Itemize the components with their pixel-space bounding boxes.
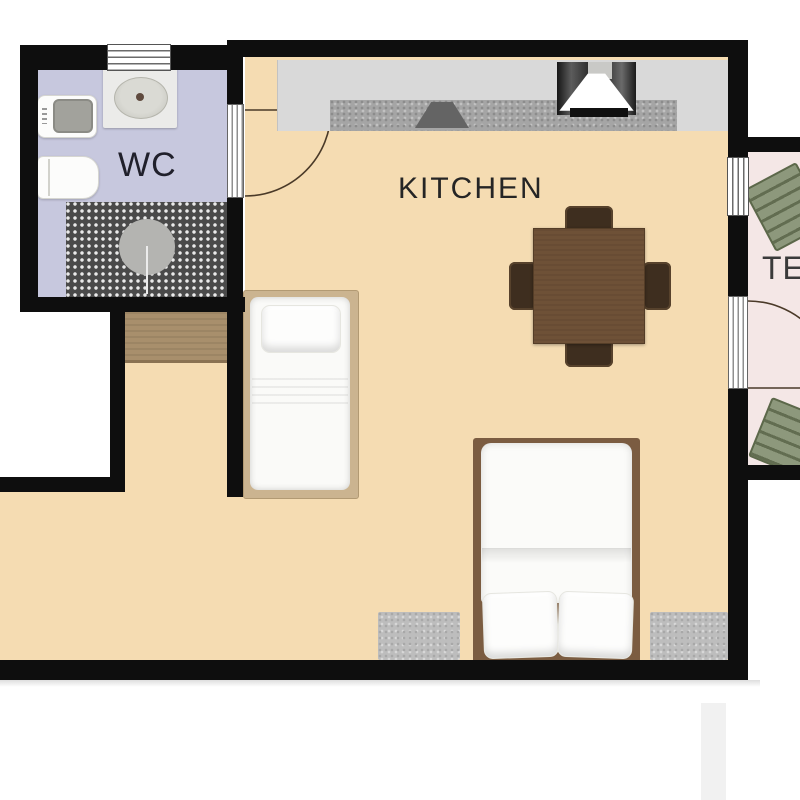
dining-chair-right bbox=[643, 262, 671, 310]
wall-top-kitchen bbox=[227, 40, 748, 57]
wall-right-lower bbox=[728, 388, 748, 680]
wall-terrace-top bbox=[748, 137, 800, 152]
wooden-cabinet bbox=[125, 312, 227, 363]
wc-window-icon bbox=[108, 45, 170, 70]
floor-plan: WC KITCHEN TE bbox=[0, 0, 800, 800]
wall-terrace-bottom bbox=[748, 465, 800, 480]
toilet-tank-line bbox=[48, 159, 50, 196]
wall-wc-bottom bbox=[20, 297, 245, 312]
shower-tiled-area bbox=[66, 202, 227, 297]
wall-right-upper bbox=[728, 40, 748, 158]
stove-strip-icon bbox=[570, 108, 628, 117]
shower-stem-line bbox=[146, 246, 148, 294]
wall-bottom bbox=[0, 660, 748, 680]
double-bed-pillow-left bbox=[482, 591, 559, 660]
wc-room-label: WC bbox=[118, 146, 177, 185]
wall-notch-bottom bbox=[0, 477, 125, 492]
bedside-rug-right bbox=[650, 612, 728, 660]
wall-bed-partition bbox=[227, 312, 243, 497]
washer-knobs-icon bbox=[42, 108, 47, 124]
double-bed-fold-line bbox=[482, 548, 631, 563]
double-bed-pillow-right bbox=[557, 591, 634, 660]
wall-wc-right-lower bbox=[227, 195, 243, 297]
wc-sink-vanity bbox=[103, 67, 177, 128]
washer-door-icon bbox=[53, 99, 93, 133]
double-bed-duvet bbox=[481, 443, 632, 603]
terrace-room-label: TE bbox=[762, 250, 800, 287]
terrace-window-icon bbox=[728, 158, 748, 215]
wall-wc-right-upper bbox=[227, 57, 243, 107]
wall-left bbox=[20, 45, 38, 312]
bottom-wall-shadow bbox=[0, 680, 760, 687]
wc-sink-drain-icon bbox=[136, 93, 144, 101]
terrace-door-icon bbox=[729, 297, 747, 388]
wall-notch-right bbox=[110, 312, 125, 492]
washing-machine-icon bbox=[37, 95, 97, 138]
single-bed-pillow bbox=[261, 305, 341, 353]
faint-strip-artifact bbox=[701, 703, 726, 800]
bedside-rug-left bbox=[378, 612, 460, 660]
single-bed-crease bbox=[252, 378, 348, 406]
kitchen-room-label: KITCHEN bbox=[398, 172, 544, 206]
wall-right-middle bbox=[728, 215, 748, 297]
wc-door-icon bbox=[228, 105, 243, 197]
dining-table bbox=[533, 228, 645, 344]
toilet-icon bbox=[37, 156, 99, 199]
kitchen-floor-bottom-left bbox=[0, 492, 125, 660]
